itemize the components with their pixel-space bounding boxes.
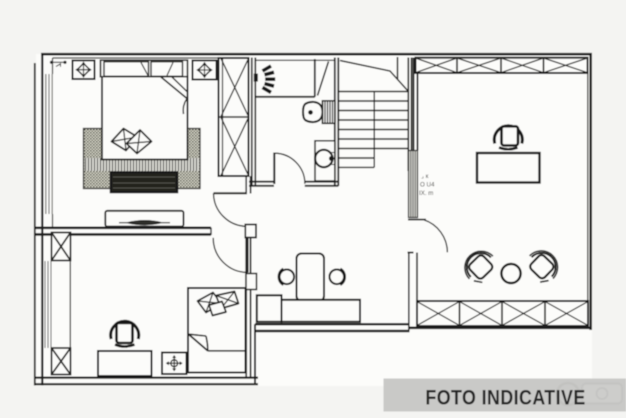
svg-text:⌟ к: ⌟ к <box>421 173 429 180</box>
svg-text:FOTO INDICATIVE: FOTO INDICATIVE <box>425 386 585 410</box>
svg-text:O U4: O U4 <box>420 182 435 189</box>
svg-text:IX. m: IX. m <box>419 190 433 197</box>
